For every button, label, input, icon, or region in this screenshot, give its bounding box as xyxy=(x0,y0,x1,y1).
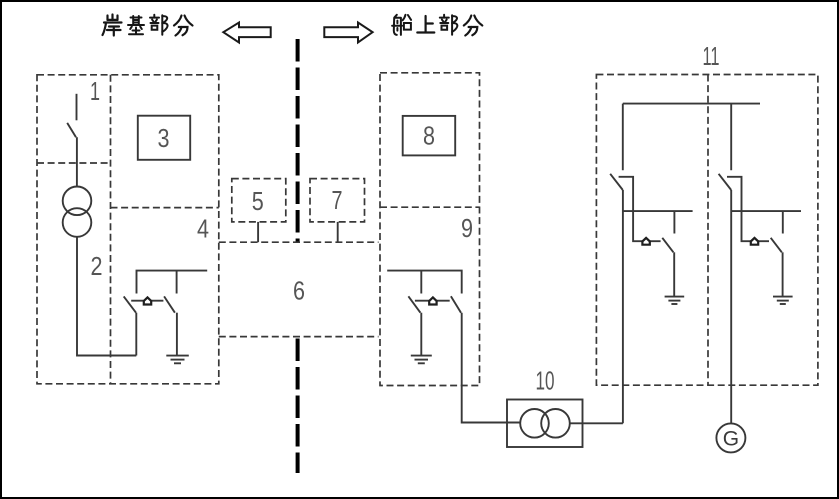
svg-text:9: 9 xyxy=(461,213,473,243)
svg-text:6: 6 xyxy=(293,276,305,306)
svg-text:3: 3 xyxy=(158,123,170,153)
svg-text:11: 11 xyxy=(703,41,720,71)
svg-text:1: 1 xyxy=(90,76,100,106)
svg-text:7: 7 xyxy=(332,185,343,215)
svg-text:10: 10 xyxy=(536,366,555,396)
svg-text:5: 5 xyxy=(252,186,264,216)
svg-text:8: 8 xyxy=(423,121,435,151)
svg-text:2: 2 xyxy=(91,251,103,281)
svg-text:G: G xyxy=(723,428,739,451)
svg-text:4: 4 xyxy=(197,214,209,244)
